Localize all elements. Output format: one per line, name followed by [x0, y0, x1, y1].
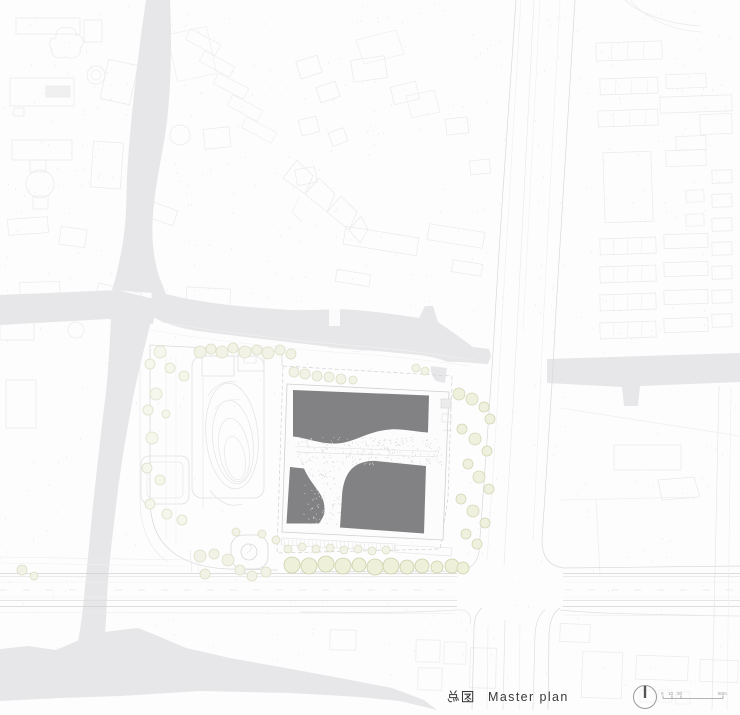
svg-text:0: 0 — [661, 691, 664, 696]
svg-text:20: 20 — [677, 691, 683, 696]
svg-text:10: 10 — [668, 691, 674, 696]
svg-text:Master plan: Master plan — [488, 690, 569, 704]
svg-text:50m: 50m — [718, 691, 727, 696]
